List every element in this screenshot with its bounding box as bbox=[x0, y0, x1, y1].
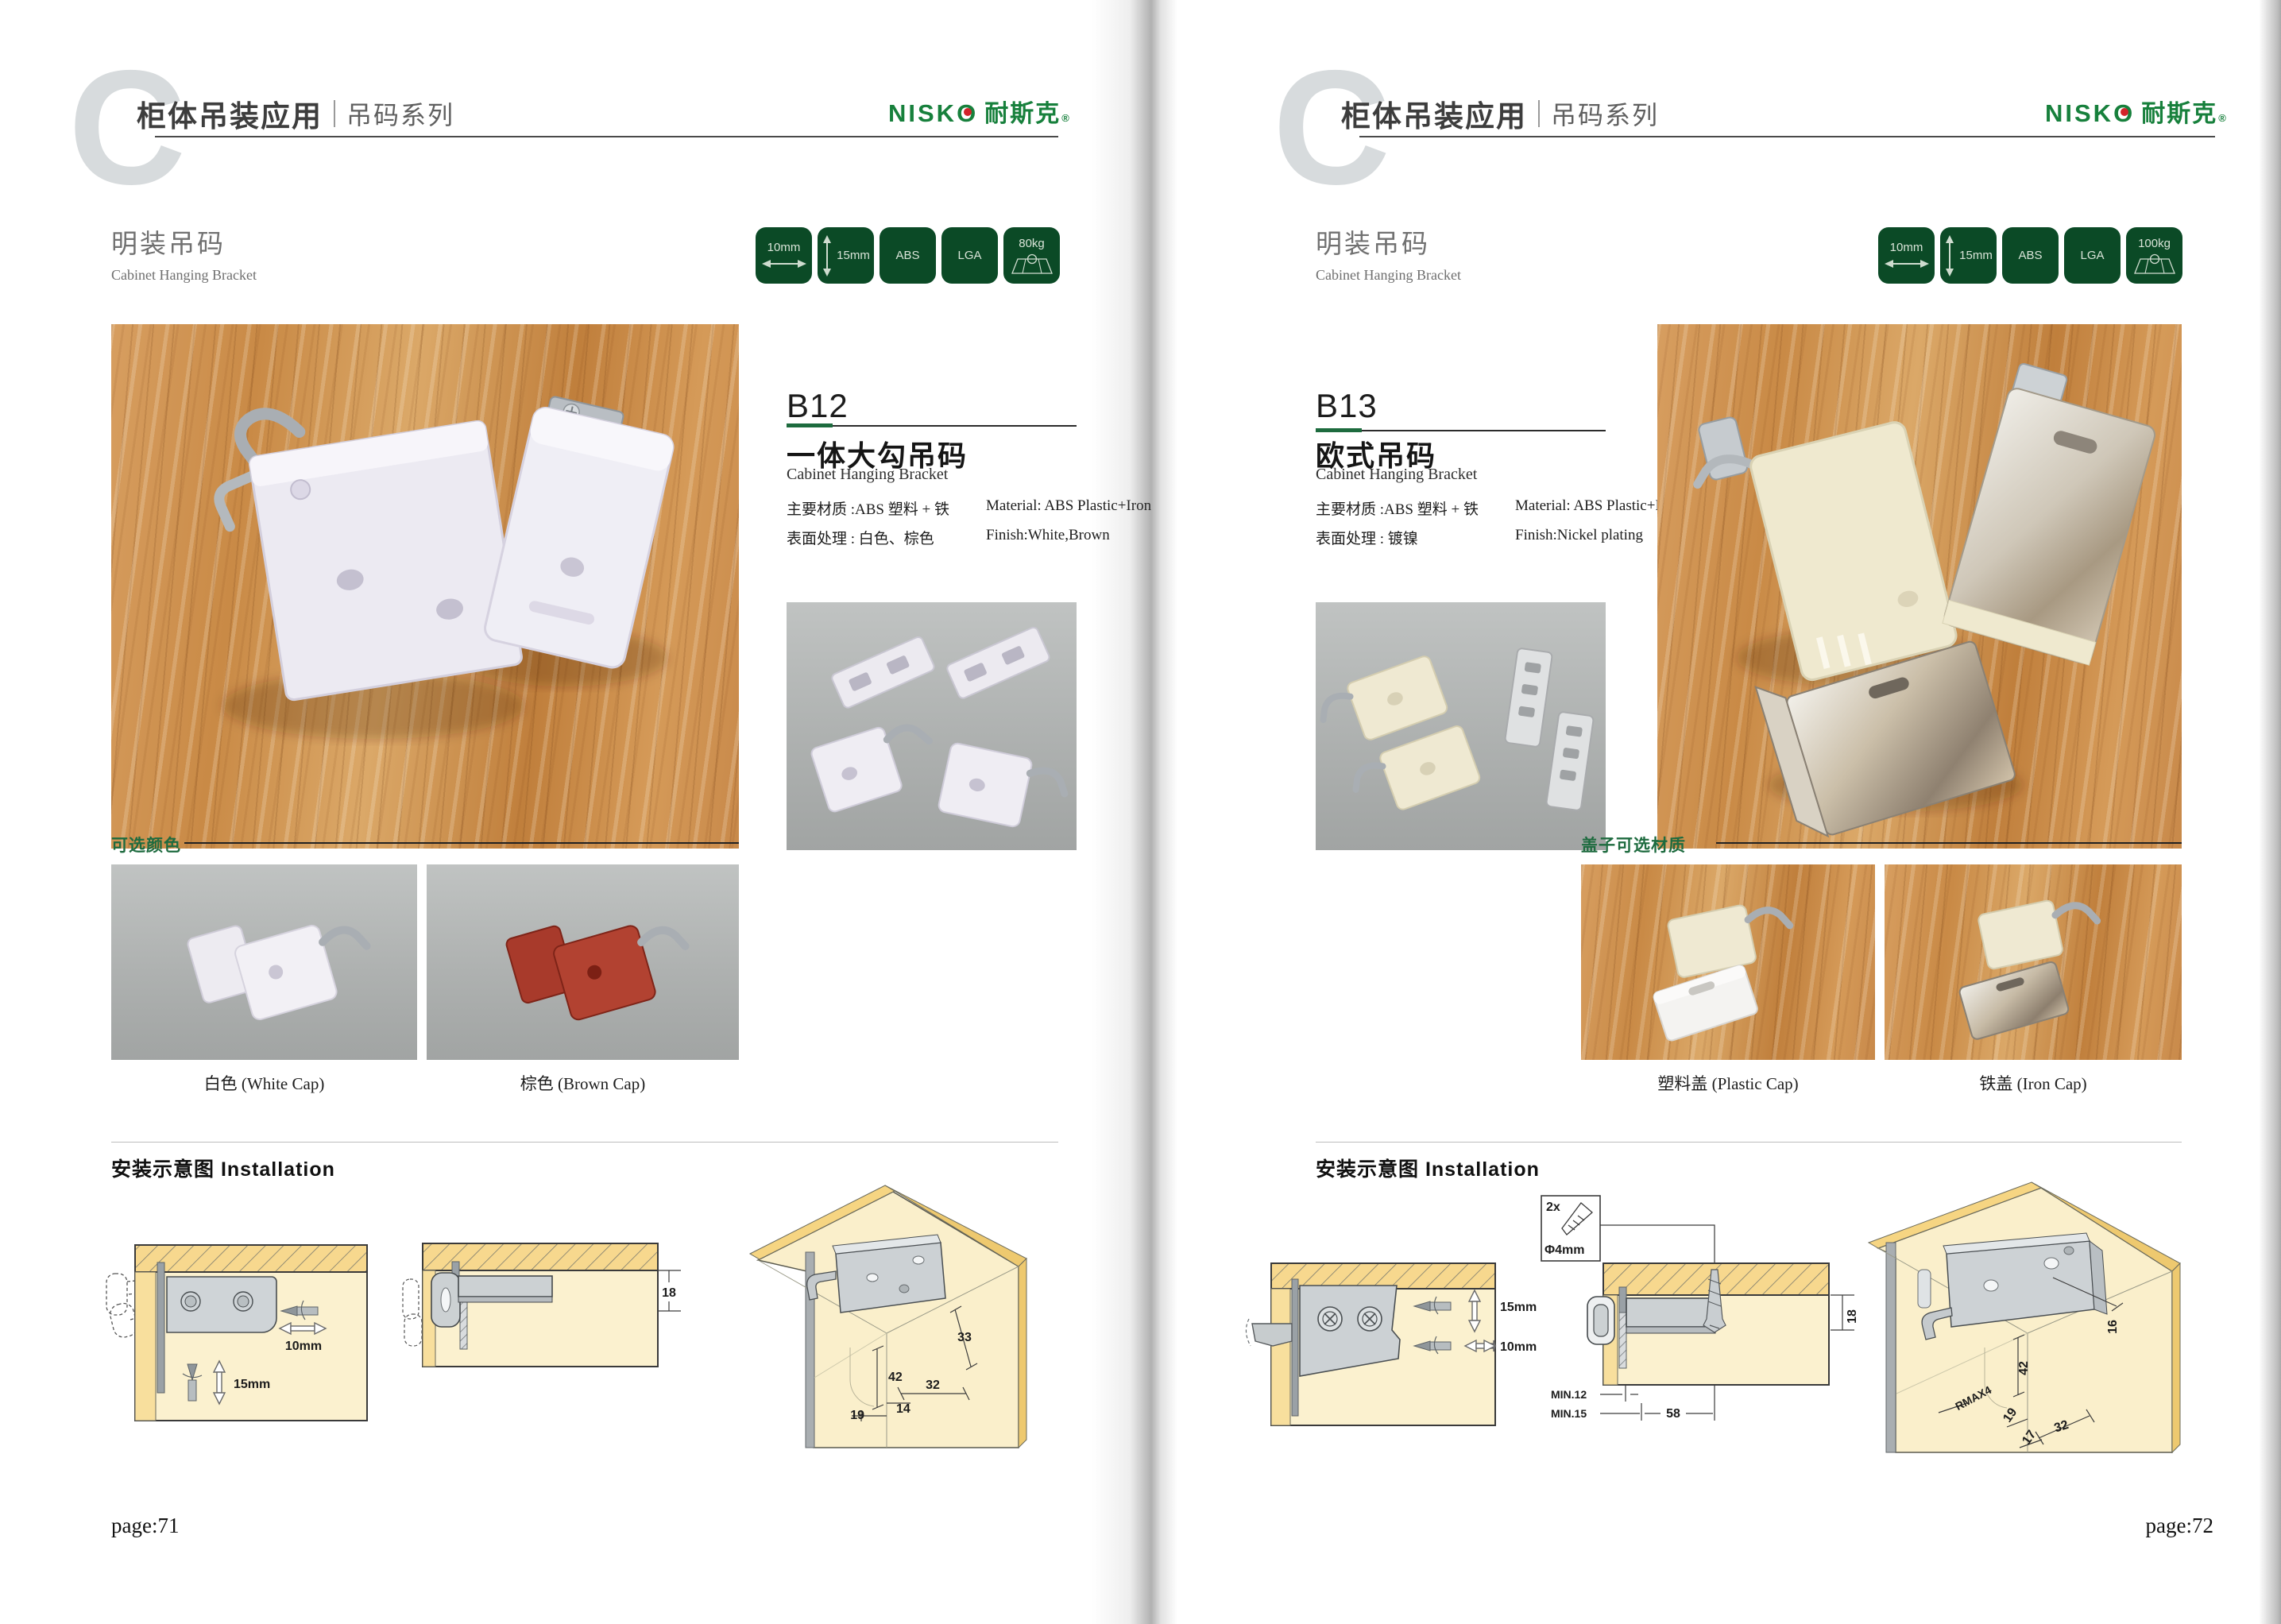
svg-text:MIN.15: MIN.15 bbox=[1551, 1407, 1587, 1420]
phillips-screw bbox=[1358, 1307, 1382, 1331]
product-code: B12 bbox=[787, 387, 849, 425]
section-subtitle: 明装吊码 Cabinet Hanging Bracket bbox=[1316, 222, 1461, 284]
catalog-spread: C 柜体吊装应用 吊码系列 NISKO 耐斯克 ® 明装吊码 Cabinet H… bbox=[0, 0, 2281, 1624]
product-code: B13 bbox=[1316, 387, 1378, 425]
badge-height-label: 15mm bbox=[837, 249, 870, 262]
product-name-en: Cabinet Hanging Bracket bbox=[787, 466, 948, 484]
option-caption-white: 白色 (White Cap) bbox=[111, 1071, 417, 1095]
page-number: page:71 bbox=[111, 1514, 179, 1538]
badge-material: ABS bbox=[880, 227, 936, 284]
svg-text:10mm: 10mm bbox=[1500, 1340, 1537, 1354]
svg-text:10mm: 10mm bbox=[285, 1340, 322, 1353]
svg-text:33: 33 bbox=[957, 1331, 972, 1344]
badge-height: 15mm bbox=[818, 227, 874, 284]
badge-load: 80kg bbox=[1003, 227, 1060, 284]
product-specs: 主要材质 :ABS 塑料 + 铁 Material: ABS Plastic+I… bbox=[1316, 497, 1689, 548]
installation-iso-view-b12: 33 42 32 14 19 bbox=[717, 1177, 1031, 1460]
option-photo-white bbox=[111, 864, 417, 1060]
page-number: page:72 bbox=[2018, 1514, 2213, 1538]
header-category: 柜体吊装应用 bbox=[137, 92, 323, 135]
white-bracket-box bbox=[482, 393, 678, 670]
svg-text:42: 42 bbox=[888, 1371, 903, 1384]
subtitle-cn: 明装吊码 bbox=[111, 222, 257, 261]
rail-drawing bbox=[1505, 648, 1552, 748]
page-header-title: 柜体吊装应用 吊码系列 bbox=[1341, 92, 1659, 135]
option-photo-plastic-cap bbox=[1581, 864, 1875, 1060]
product-name-en: Cabinet Hanging Bracket bbox=[1316, 466, 1477, 484]
spec-badges: 10mm 15mm ABS LGA 80kg bbox=[756, 227, 1060, 284]
page-header-title: 柜体吊装应用 吊码系列 bbox=[137, 92, 454, 135]
nickel-covered-bracket bbox=[1943, 362, 2164, 666]
installation-heading: 安装示意图 Installation bbox=[1316, 1154, 1540, 1182]
plastic-bracket bbox=[1684, 377, 1958, 695]
header-divider bbox=[334, 100, 335, 127]
spec-material-cn: 主要材质 :ABS 塑料 + 铁 bbox=[1316, 497, 1494, 519]
product-photo-b12-detail bbox=[787, 602, 1077, 850]
installation-front-view-b12: 10mm 15mm bbox=[103, 1228, 381, 1434]
phillips-screw bbox=[1318, 1307, 1342, 1331]
product-photo-b12-main bbox=[111, 324, 739, 849]
badge-load-label: 80kg bbox=[1019, 237, 1045, 250]
brand-logo: NISKO 耐斯克 ® bbox=[888, 94, 1069, 129]
badge-width-label: 10mm bbox=[1890, 241, 1923, 254]
brand-logo: NISKO 耐斯克 ® bbox=[2045, 94, 2226, 129]
svg-text:18: 18 bbox=[662, 1286, 676, 1300]
svg-text:19: 19 bbox=[850, 1409, 864, 1422]
svg-text:Φ4mm: Φ4mm bbox=[1545, 1243, 1584, 1257]
load-icon bbox=[1011, 253, 1054, 274]
registered-mark: ® bbox=[2218, 112, 2226, 124]
width-arrow-icon bbox=[762, 257, 806, 270]
badge-material-label: ABS bbox=[2018, 249, 2042, 262]
rail-drawing bbox=[830, 636, 935, 709]
brand-logo-latin: NISKO bbox=[2045, 99, 2135, 128]
header-rule bbox=[155, 136, 1058, 137]
badge-width-label: 10mm bbox=[767, 241, 801, 254]
header-category: 柜体吊装应用 bbox=[1341, 92, 1527, 135]
header-rule bbox=[1359, 136, 2215, 137]
subtitle-en: Cabinet Hanging Bracket bbox=[111, 267, 257, 284]
badge-width: 10mm bbox=[1878, 227, 1935, 284]
product-photo-b13-detail bbox=[1316, 602, 1606, 850]
svg-text:15mm: 15mm bbox=[1500, 1301, 1537, 1314]
options-heading: 盖子可选材质 bbox=[1581, 833, 1686, 856]
product-specs: 主要材质 :ABS 塑料 + 铁 Material: ABS Plastic+I… bbox=[787, 497, 1160, 548]
installation-iso-view-b13: 16 42 RMAX4 19 17 32 bbox=[1851, 1174, 2209, 1516]
installation-heading: 安装示意图 Installation bbox=[111, 1154, 335, 1182]
badge-lga: LGA bbox=[941, 227, 998, 284]
svg-text:MIN.12: MIN.12 bbox=[1551, 1388, 1587, 1401]
svg-text:15mm: 15mm bbox=[234, 1378, 270, 1391]
badge-lga-label: LGA bbox=[957, 249, 981, 262]
rail-drawing bbox=[1546, 712, 1594, 811]
badge-load: 100kg bbox=[2126, 227, 2182, 284]
header-series: 吊码系列 bbox=[1551, 95, 1659, 132]
installation-rule bbox=[111, 1142, 1058, 1143]
header-divider bbox=[1538, 100, 1540, 127]
installation-front-view-b13: 15mm 10mm bbox=[1241, 1257, 1543, 1448]
badge-width: 10mm bbox=[756, 227, 812, 284]
svg-text:2x: 2x bbox=[1546, 1201, 1560, 1214]
installation-rule bbox=[1316, 1142, 2182, 1143]
option-caption-plastic: 塑料盖 (Plastic Cap) bbox=[1581, 1071, 1875, 1095]
page-edge bbox=[2259, 0, 2281, 1624]
width-arrow-icon bbox=[1885, 257, 1929, 270]
svg-text:14: 14 bbox=[896, 1402, 910, 1416]
spec-material-en: Material: ABS Plastic+Iron bbox=[986, 497, 1160, 519]
spec-finish-cn: 表面处理 : 镀镍 bbox=[1316, 527, 1494, 548]
brand-logo-cn: 耐斯克 bbox=[2141, 94, 2217, 129]
installation-side-view-b12: 18 bbox=[401, 1238, 687, 1377]
height-arrow-icon bbox=[822, 235, 833, 276]
svg-text:32: 32 bbox=[926, 1378, 940, 1392]
installation-side-view-b13: 2x Φ4mm 18 bbox=[1540, 1193, 1873, 1432]
badge-load-label: 100kg bbox=[2138, 237, 2171, 250]
bracket-small bbox=[810, 713, 941, 813]
bracket-drawing bbox=[167, 1277, 276, 1332]
spec-finish-en: Finish:White,Brown bbox=[986, 527, 1160, 548]
section-subtitle: 明装吊码 Cabinet Hanging Bracket bbox=[111, 222, 257, 284]
product-rule bbox=[787, 423, 1077, 428]
option-caption-iron: 铁盖 (Iron Cap) bbox=[1885, 1071, 2182, 1095]
brand-logo-cn: 耐斯克 bbox=[984, 94, 1061, 129]
screw-note-box: 2x Φ4mm bbox=[1541, 1196, 1600, 1261]
options-rule bbox=[1716, 842, 2182, 844]
badge-lga: LGA bbox=[2064, 227, 2121, 284]
badge-material: ABS bbox=[2002, 227, 2059, 284]
options-rule bbox=[184, 842, 739, 844]
options-heading: 可选颜色 bbox=[111, 833, 181, 856]
book-spine bbox=[1092, 0, 1211, 1624]
registered-mark: ® bbox=[1061, 112, 1069, 124]
svg-text:42: 42 bbox=[2017, 1361, 2031, 1375]
badge-height-label: 15mm bbox=[1959, 249, 1993, 262]
height-arrow-icon bbox=[1944, 235, 1955, 276]
drill-template bbox=[403, 1279, 422, 1346]
option-photo-brown bbox=[427, 864, 739, 1060]
spec-finish-cn: 表面处理 : 白色、棕色 bbox=[787, 527, 965, 548]
white-bracket-plate bbox=[207, 380, 522, 706]
badge-lga-label: LGA bbox=[2080, 249, 2104, 262]
svg-text:58: 58 bbox=[1666, 1407, 1680, 1421]
header-series: 吊码系列 bbox=[346, 95, 454, 132]
option-caption-brown: 棕色 (Brown Cap) bbox=[427, 1071, 739, 1095]
load-icon bbox=[2133, 253, 2176, 274]
brand-logo-latin: NISKO bbox=[888, 99, 978, 128]
svg-text:16: 16 bbox=[2106, 1320, 2120, 1334]
product-photo-b13-main bbox=[1657, 324, 2182, 849]
subtitle-cn: 明装吊码 bbox=[1316, 222, 1461, 261]
badge-material-label: ABS bbox=[895, 249, 919, 262]
subtitle-en: Cabinet Hanging Bracket bbox=[1316, 267, 1461, 284]
rail-drawing bbox=[945, 626, 1050, 699]
spec-material-cn: 主要材质 :ABS 塑料 + 铁 bbox=[787, 497, 965, 519]
bracket-small bbox=[938, 742, 1070, 836]
badge-height: 15mm bbox=[1940, 227, 1997, 284]
option-photo-iron-cap bbox=[1885, 864, 2182, 1060]
spec-badges: 10mm 15mm ABS LGA 100kg bbox=[1878, 227, 2182, 284]
